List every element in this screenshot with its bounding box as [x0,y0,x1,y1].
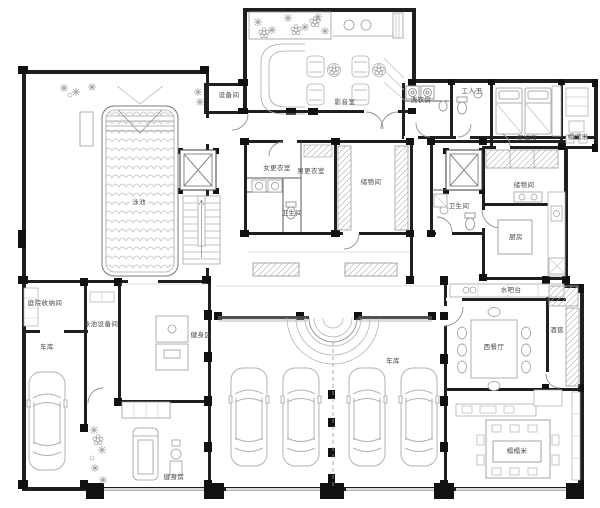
room-label-kitchen: 厨房 [507,235,525,242]
room-label-men-changing: 男更衣室 [297,169,325,176]
room-label-storage-right: 储物间 [514,183,535,190]
car-icon [399,368,439,466]
floor-plan: 影音室 设备间 洗衣房 工人卫 保姆房 榻榻米 泳池 女更衣室 男更衣室 卫生间… [0,0,600,508]
room-label-women-changing: 女更衣室 [263,166,291,173]
bed-icon [496,88,522,134]
car-icon [229,368,269,466]
changing-fixtures [252,145,332,219]
room-label-theater: 影音室 [335,100,356,107]
stairs-icon [183,196,220,264]
room-label-yard-storage: 庭院收纳间 [28,301,63,308]
room-label-nanny: 保姆房 [517,136,538,143]
room-label-laundry: 洗衣房 [411,98,432,105]
car-icon [347,368,387,466]
pool-icon [80,86,178,276]
room-label-garage-left: 车库 [40,345,54,352]
room-label-dining: 西餐厅 [482,345,507,352]
car-icon [27,372,67,470]
sofa-icon [261,44,305,114]
tatami-furniture [456,390,580,480]
gym-equipment [122,316,188,480]
theater-furniture [249,12,404,114]
room-label-equipment: 设备间 [219,93,240,100]
wine-cellar-shelves [549,286,579,386]
storage-closets [338,146,408,230]
room-label-water-bar: 水吧台 [499,288,524,295]
room-label-storage-center: 储物间 [361,180,382,187]
toilet-icon [457,97,467,114]
room-label-bathroom-right: 卫生间 [449,204,470,211]
room-label-garage-main: 车库 [386,359,400,366]
room-label-gym-zone: 健身区 [191,333,212,340]
room-label-bathroom-center: 卫生间 [282,211,303,218]
exercise-bike-icon [170,440,182,475]
room-label-pool: 泳池 [130,200,148,207]
floor-plan-drawing [0,0,600,508]
toilet-icon [465,213,475,230]
step-strips [253,263,397,276]
bed-icon [525,88,551,134]
room-label-gym-room: 健身房 [164,475,185,482]
left-block [24,288,114,470]
room-label-tatami-nook: 榻榻米 [568,135,589,142]
room-label-wine-cellar: 酒窖 [550,328,564,335]
room-label-tatami-room: 榻榻米 [505,449,530,456]
room-label-staff-toilet: 工人卫 [462,89,483,96]
room-label-pool-equipment: 泳池设备间 [84,322,119,329]
car-icon [281,368,321,466]
cooktop-icon [514,192,542,202]
